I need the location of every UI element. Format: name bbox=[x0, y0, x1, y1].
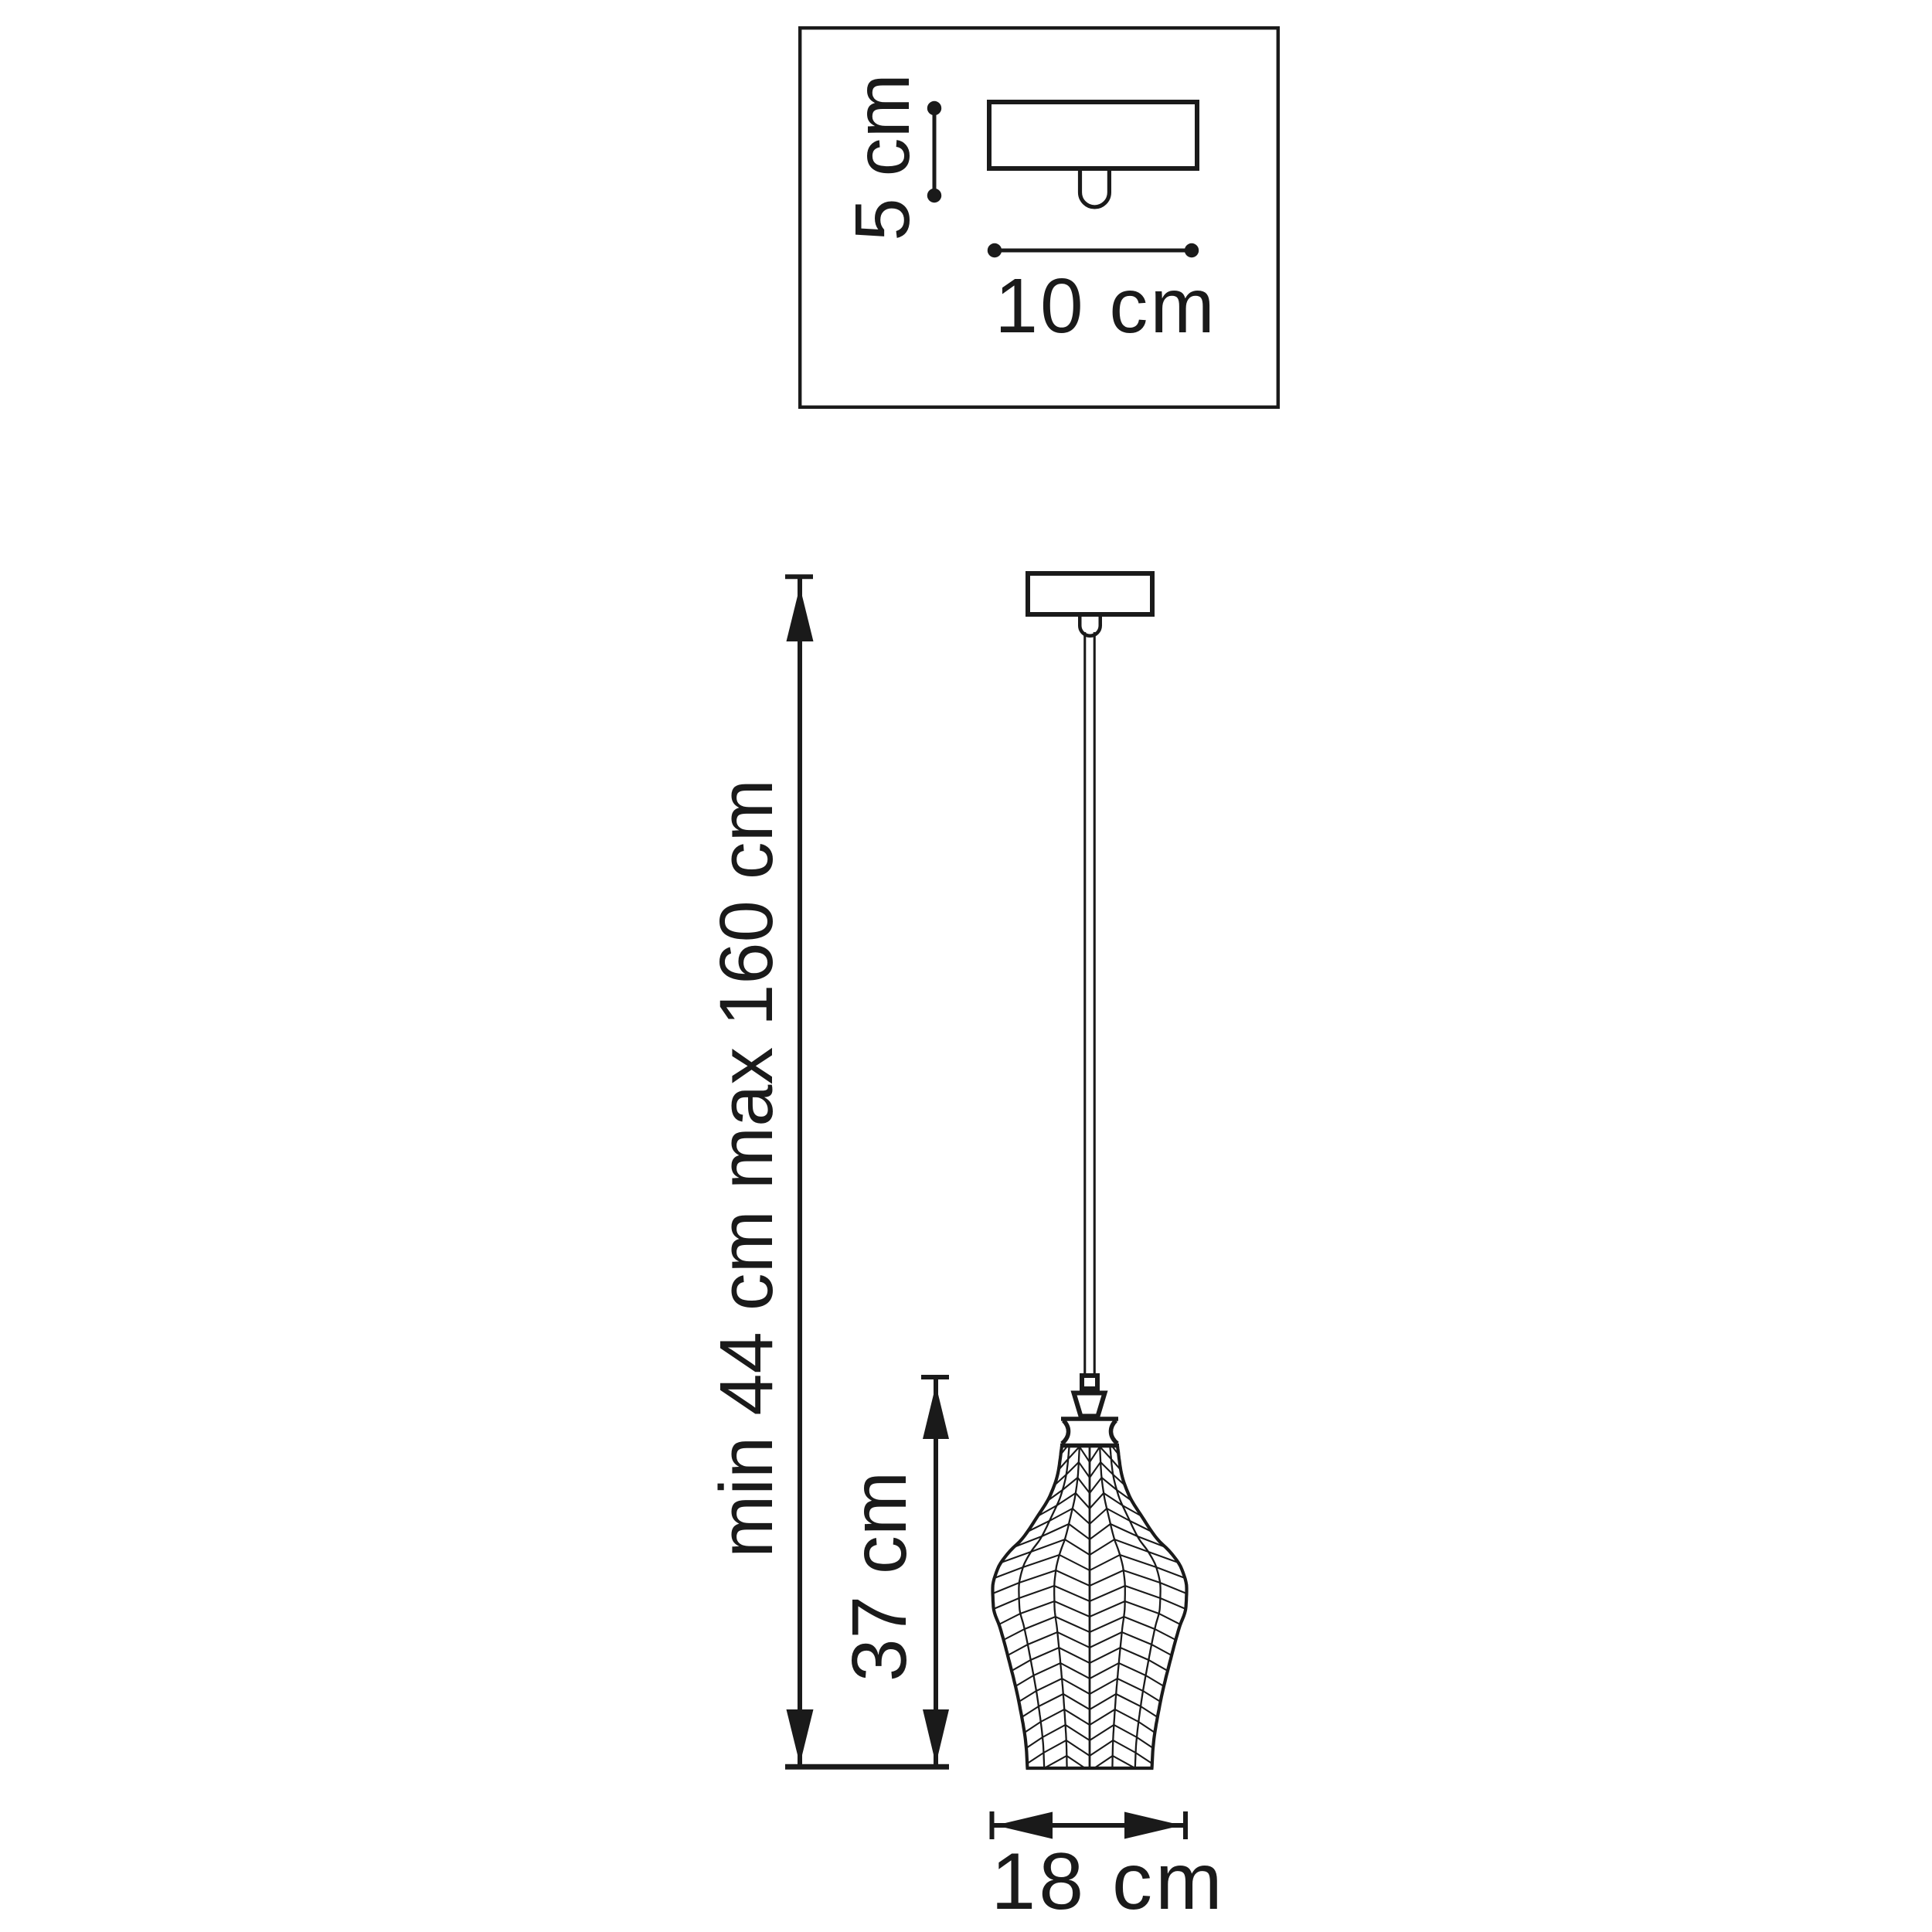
svg-text:18 cm: 18 cm bbox=[991, 1837, 1225, 1927]
svg-text:min 44 cm max 160 cm: min 44 cm max 160 cm bbox=[704, 779, 788, 1558]
svg-text:37 cm: 37 cm bbox=[836, 1471, 923, 1682]
svg-text:5 cm: 5 cm bbox=[839, 73, 926, 241]
svg-text:10 cm: 10 cm bbox=[995, 263, 1216, 349]
